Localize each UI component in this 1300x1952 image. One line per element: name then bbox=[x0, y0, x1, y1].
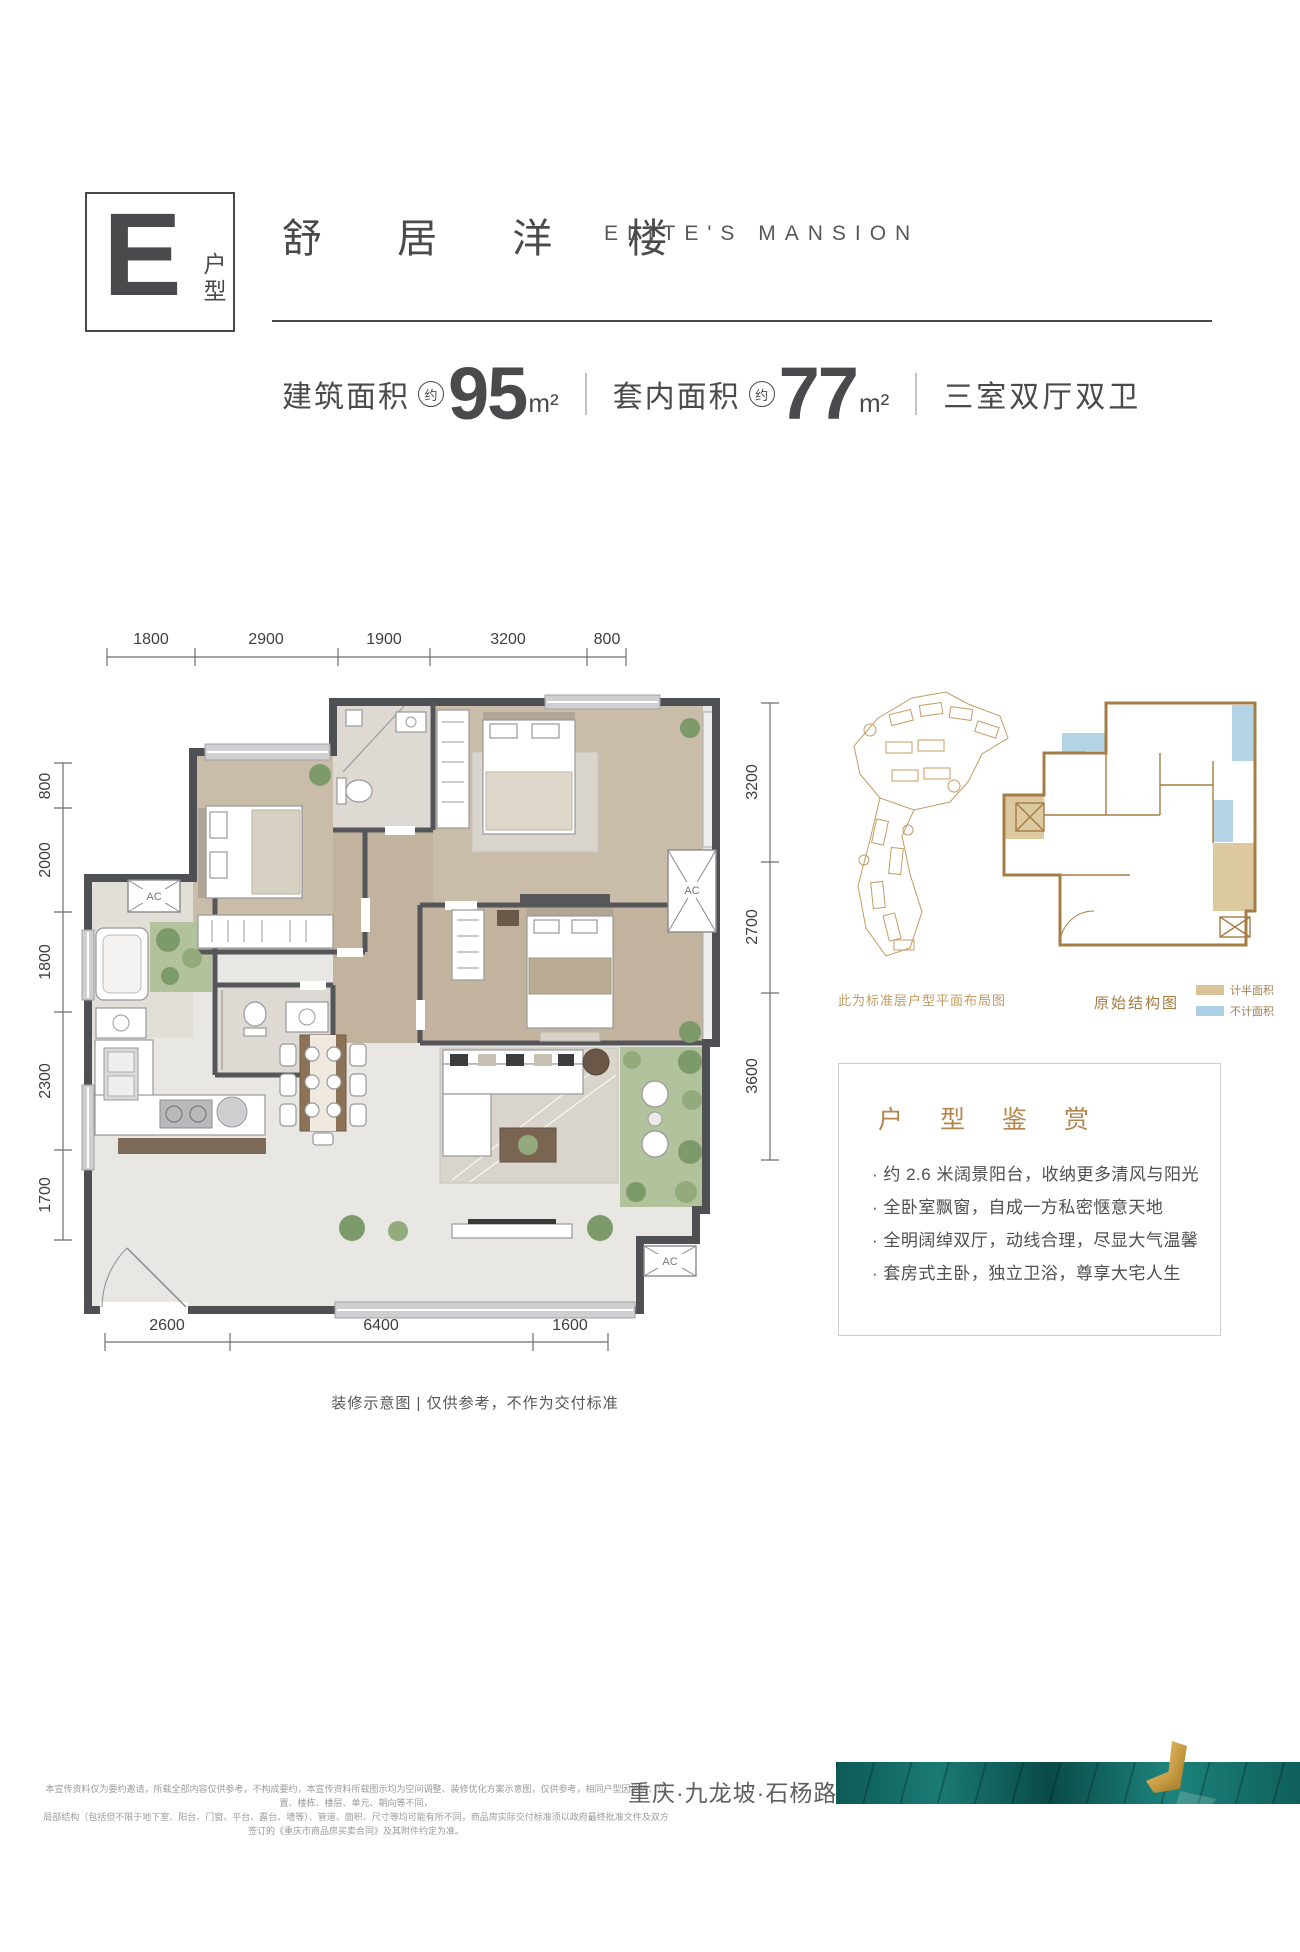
location-text: 重庆·九龙坡·石杨路 bbox=[628, 1774, 837, 1808]
type-label: 户型 bbox=[196, 252, 230, 306]
brand-logo-icon bbox=[1136, 1732, 1236, 1816]
dimensions-right: 3200 2700 3600 bbox=[744, 703, 779, 1160]
svg-text:3600: 3600 bbox=[744, 1058, 761, 1094]
legend-excluded-area: 不计面积 bbox=[1196, 1003, 1300, 1019]
legend-half-area: 计半面积 bbox=[1196, 982, 1300, 998]
svg-text:AC: AC bbox=[662, 1256, 677, 1268]
stats-divider bbox=[915, 373, 917, 415]
svg-text:800: 800 bbox=[594, 631, 621, 648]
gross-area-value: 95 bbox=[448, 357, 526, 431]
floor-fills bbox=[88, 702, 716, 1310]
disclaimer-text: 本宣传资料仅为要约邀请，所载全部内容仅供参考，不构成要约，本宣传资料所载图示均为… bbox=[42, 1782, 670, 1838]
area-stats-row: 建筑面积 约 95 m² 套内面积 约 77 m² 三室双厅双卫 bbox=[282, 346, 1242, 442]
inner-area-label: 套内面积 bbox=[613, 372, 741, 416]
svg-text:AC: AC bbox=[146, 891, 161, 903]
type-letter: E bbox=[103, 196, 182, 314]
svg-text:1600: 1600 bbox=[552, 1317, 588, 1334]
svg-text:AC: AC bbox=[684, 885, 699, 897]
header-divider bbox=[272, 320, 1212, 322]
stats-divider bbox=[585, 373, 587, 415]
svg-text:2700: 2700 bbox=[744, 909, 761, 945]
floorplan-svg: AC AC AC 1800 2900 1900 3200 800 bbox=[20, 555, 810, 1465]
svg-text:2000: 2000 bbox=[37, 842, 54, 878]
inner-area-value: 77 bbox=[779, 357, 857, 431]
svg-text:3200: 3200 bbox=[490, 631, 526, 648]
svg-text:3200: 3200 bbox=[744, 764, 761, 800]
area-legend: 计半面积 不计面积 bbox=[1196, 982, 1300, 1024]
appreciation-bullet: · 全明阔绰双厅，动线合理，尽显大气温馨 bbox=[872, 1224, 1202, 1257]
dimensions-bottom: 2600 6400 1600 bbox=[105, 1317, 608, 1351]
dimensions-top: 1800 2900 1900 3200 800 bbox=[107, 631, 626, 666]
svg-text:1900: 1900 bbox=[366, 631, 402, 648]
inner-area-unit: m² bbox=[859, 388, 889, 419]
half-area-swatch-icon bbox=[1196, 985, 1224, 995]
structure-diagram bbox=[1000, 695, 1265, 965]
excluded-area-swatch-icon bbox=[1196, 1006, 1224, 1016]
floorplan-caption: 装修示意图 | 仅供参考，不作为交付标准 bbox=[245, 1392, 705, 1413]
svg-text:6400: 6400 bbox=[363, 1317, 399, 1334]
svg-text:1800: 1800 bbox=[133, 631, 169, 648]
approx-circle-icon: 约 bbox=[749, 381, 775, 407]
approx-circle-icon: 约 bbox=[418, 381, 444, 407]
room-config-label: 三室双厅双卫 bbox=[943, 372, 1141, 416]
svg-text:2900: 2900 bbox=[248, 631, 284, 648]
appreciation-bullet: · 约 2.6 米阔景阳台，收纳更多清风与阳光 bbox=[872, 1158, 1202, 1191]
appreciation-bullet: · 套房式主卧，独立卫浴，尊享大宅人生 bbox=[872, 1257, 1202, 1290]
dimensions-left: 800 2000 1800 2300 1700 bbox=[37, 763, 72, 1240]
svg-text:800: 800 bbox=[37, 773, 54, 800]
siteplan-caption: 此为标准层户型平面布局图 bbox=[838, 990, 1058, 1009]
poster-page: E 户型 舒 居 洋 楼 ELITE'S MANSION 建筑面积 约 95 m… bbox=[0, 0, 1300, 1952]
appreciation-list: · 约 2.6 米阔景阳台，收纳更多清风与阳光 · 全卧室飘窗，自成一方私密惬意… bbox=[872, 1158, 1202, 1290]
gross-area-label: 建筑面积 bbox=[282, 372, 410, 416]
appreciation-bullet: · 全卧室飘窗，自成一方私密惬意天地 bbox=[872, 1191, 1202, 1224]
svg-text:2600: 2600 bbox=[149, 1317, 185, 1334]
svg-text:1700: 1700 bbox=[37, 1177, 54, 1213]
title-english: ELITE'S MANSION bbox=[604, 222, 919, 246]
svg-text:1800: 1800 bbox=[37, 944, 54, 980]
svg-text:2300: 2300 bbox=[37, 1063, 54, 1099]
appreciation-title: 户 型 鉴 赏 bbox=[878, 1100, 1104, 1136]
gross-area-unit: m² bbox=[528, 388, 558, 419]
